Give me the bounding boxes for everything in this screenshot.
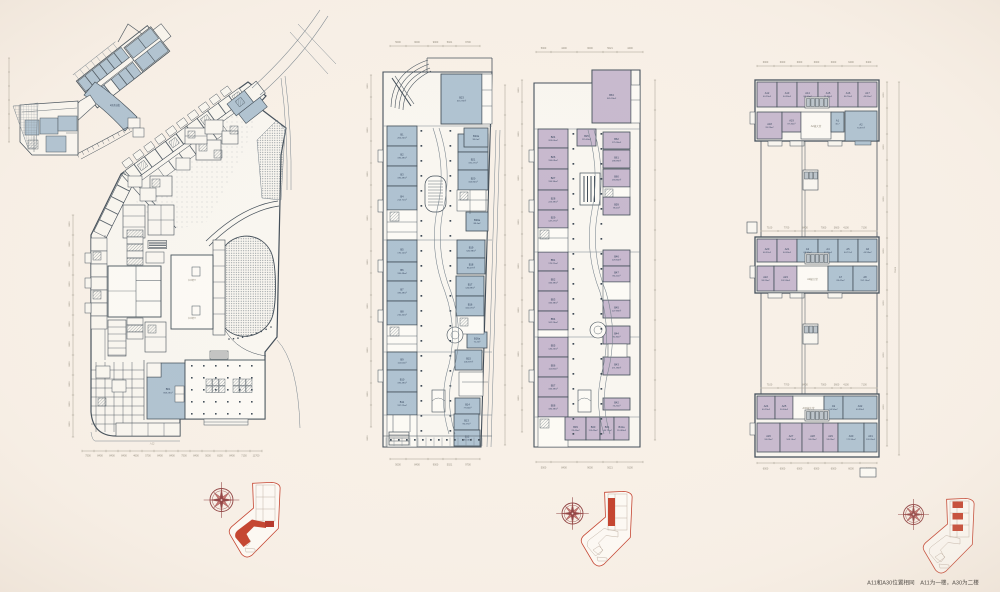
svg-text:A11和A30位置相同 A11为一楼，A30为二楼: A11和A30位置相同 A11为一楼，A30为二楼 [867, 579, 979, 587]
